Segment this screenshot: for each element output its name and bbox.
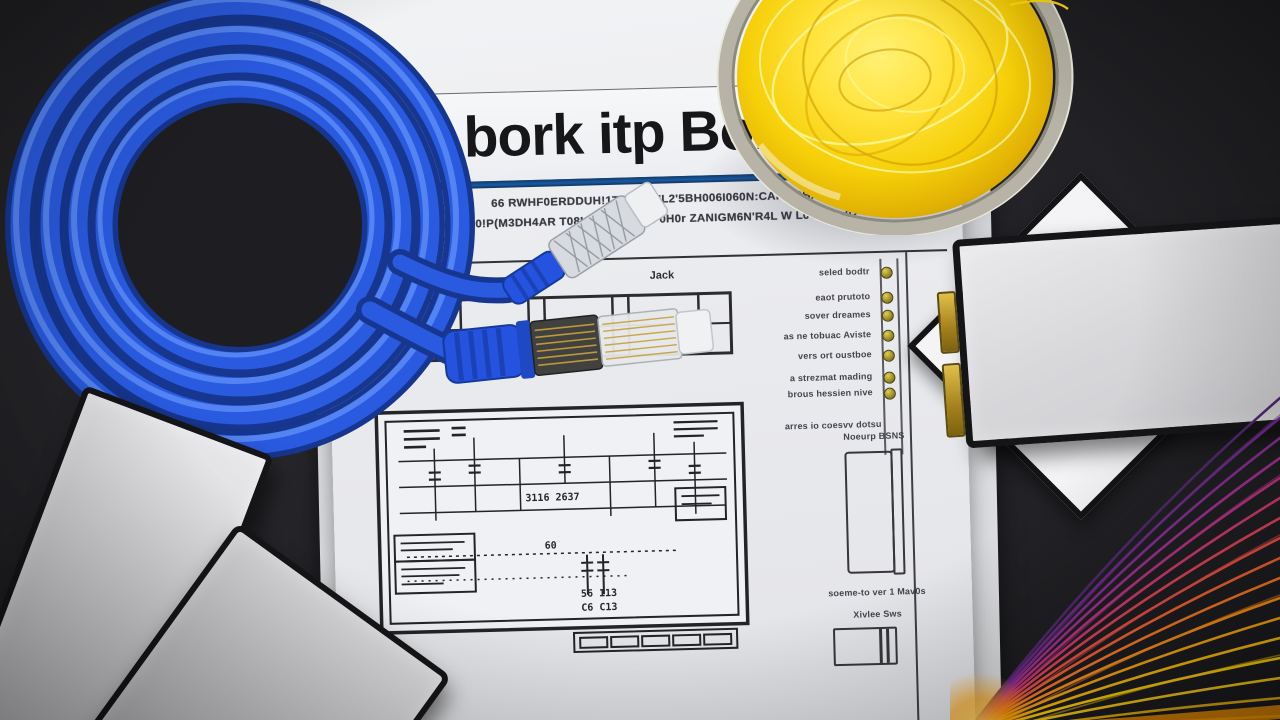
- indicator-dot: [884, 388, 896, 400]
- indicator-label: eaot prutoto: [815, 291, 870, 302]
- indicator-label: vers ort oustboe: [798, 349, 872, 361]
- rj45-plug: [442, 301, 715, 387]
- side-panel-title: Noeurp BSNS: [830, 430, 918, 442]
- indicator-label: a strezmat mading: [790, 371, 873, 383]
- bowl-glass: [718, 0, 1072, 235]
- page-column-divider: [905, 252, 919, 720]
- small-rect-bar: [879, 629, 883, 663]
- side-panel-slim-bar: [890, 448, 905, 574]
- indicator-dot: [881, 292, 893, 304]
- indicator-label: brous hessien nive: [788, 387, 873, 399]
- fiber-optic-fan: [950, 390, 1280, 720]
- side-panel-small-rect: [833, 627, 898, 667]
- side-panel-tall-rect: [844, 451, 895, 574]
- small-rect-bar: [885, 629, 889, 663]
- indicator-dot: [882, 330, 894, 342]
- indicator-dot: [882, 310, 894, 322]
- indicator-dot: [883, 372, 895, 384]
- indicator-dot: [883, 350, 895, 362]
- schematic-title-cells: [574, 629, 737, 652]
- side-panel-caption-1: soeme-to ver 1 Mav0s: [798, 585, 956, 599]
- schematic-ann-1: 3116 2637: [525, 492, 579, 504]
- photo-scene: bork itp Bortu 66 RWHF0ERDDUH!1TC 3440'L…: [0, 0, 1280, 720]
- indicator-label: sover dreames: [804, 309, 870, 321]
- indicator-label: as ne tobuac Aviste: [783, 329, 871, 341]
- fiber-strands: [964, 398, 1280, 720]
- braided-rj45-connector: [496, 178, 671, 313]
- schematic-ann-2: 60: [545, 540, 557, 551]
- schematic-ann-4: C6 C13: [581, 602, 617, 614]
- schematic-ann-3: 56 113: [581, 588, 617, 600]
- gold-connector-pin: [937, 291, 960, 354]
